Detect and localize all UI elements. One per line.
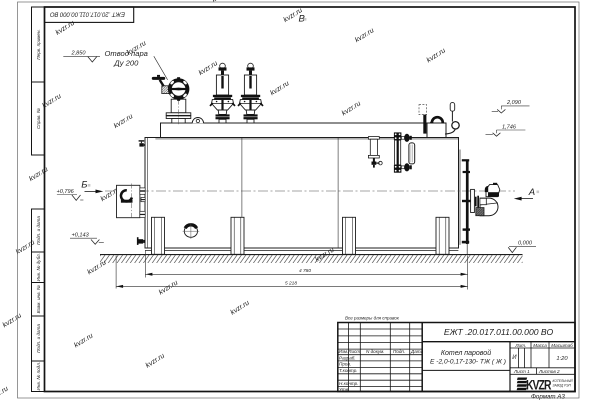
svg-text:Т.контр.: Т.контр. bbox=[339, 368, 358, 373]
svg-text:N докум.: N докум. bbox=[366, 349, 385, 354]
svg-text:2,090: 2,090 bbox=[506, 100, 522, 106]
svg-text:Подп.: Подп. bbox=[393, 349, 405, 354]
svg-text:2,850: 2,850 bbox=[71, 51, 87, 57]
svg-text:Изм.Лист: Изм.Лист bbox=[339, 349, 361, 354]
svg-text:Взам. инв. №: Взам. инв. № bbox=[36, 285, 41, 313]
svg-text:0,000: 0,000 bbox=[518, 241, 533, 247]
svg-text:Дата: Дата bbox=[410, 349, 424, 354]
svg-text:Пров.: Пров. bbox=[339, 362, 351, 367]
svg-text:ЗАВОД РЭП: ЗАВОД РЭП bbox=[553, 384, 572, 388]
svg-text:Масса: Масса bbox=[533, 343, 547, 348]
svg-text:Котел паровой: Котел паровой bbox=[441, 349, 491, 357]
svg-text:Формат А3: Формат А3 bbox=[531, 393, 565, 400]
svg-text:Б: Б bbox=[81, 180, 87, 191]
svg-text:Разраб.: Разраб. bbox=[339, 355, 356, 360]
svg-text:Перв. примен.: Перв. примен. bbox=[36, 29, 41, 60]
svg-text:Ду 200: Ду 200 bbox=[113, 58, 139, 67]
svg-text:Отвод пара: Отвод пара bbox=[105, 49, 148, 58]
svg-text:Подп. и дата: Подп. и дата bbox=[36, 216, 41, 245]
svg-text:Подп. и дата: Подп. и дата bbox=[36, 324, 41, 353]
svg-text:ЕЖТ .20.017.011.00.000 ВО: ЕЖТ .20.017.011.00.000 ВО bbox=[444, 327, 554, 337]
svg-text:+0,796: +0,796 bbox=[57, 189, 75, 195]
svg-text:KVZR: KVZR bbox=[526, 378, 552, 393]
svg-text:1:20: 1:20 bbox=[556, 356, 568, 362]
svg-text:5 218: 5 218 bbox=[285, 280, 297, 286]
svg-text:Все размеры для справок: Все размеры для справок bbox=[345, 315, 400, 320]
svg-text:Инв. № дубл.: Инв. № дубл. bbox=[36, 253, 41, 281]
svg-text:Справ. №: Справ. № bbox=[36, 108, 41, 129]
svg-text:КОТЕЛЬНЫЙ: КОТЕЛЬНЫЙ bbox=[553, 379, 574, 383]
svg-text:И: И bbox=[512, 355, 517, 361]
svg-text:ЕЖТ .20.017.011.00.000 ВО: ЕЖТ .20.017.011.00.000 ВО bbox=[50, 11, 125, 17]
svg-text:Листов 2: Листов 2 bbox=[538, 369, 560, 374]
svg-text:А: А bbox=[528, 187, 535, 198]
svg-text:Лист 1: Лист 1 bbox=[513, 369, 530, 374]
svg-text:+0,143: +0,143 bbox=[72, 232, 90, 238]
svg-text:Масштаб: Масштаб bbox=[551, 343, 573, 348]
svg-text:Утв.: Утв. bbox=[339, 387, 349, 392]
svg-text:Инв. № подл.: Инв. № подл. bbox=[36, 362, 41, 391]
svg-text:Е -2,0-0,17-130- ТЖ ( Ж ): Е -2,0-0,17-130- ТЖ ( Ж ) bbox=[430, 359, 506, 366]
svg-text:Н.контр.: Н.контр. bbox=[339, 381, 358, 386]
svg-text:Лит.: Лит. bbox=[514, 343, 526, 348]
svg-text:4 780: 4 780 bbox=[299, 268, 311, 274]
